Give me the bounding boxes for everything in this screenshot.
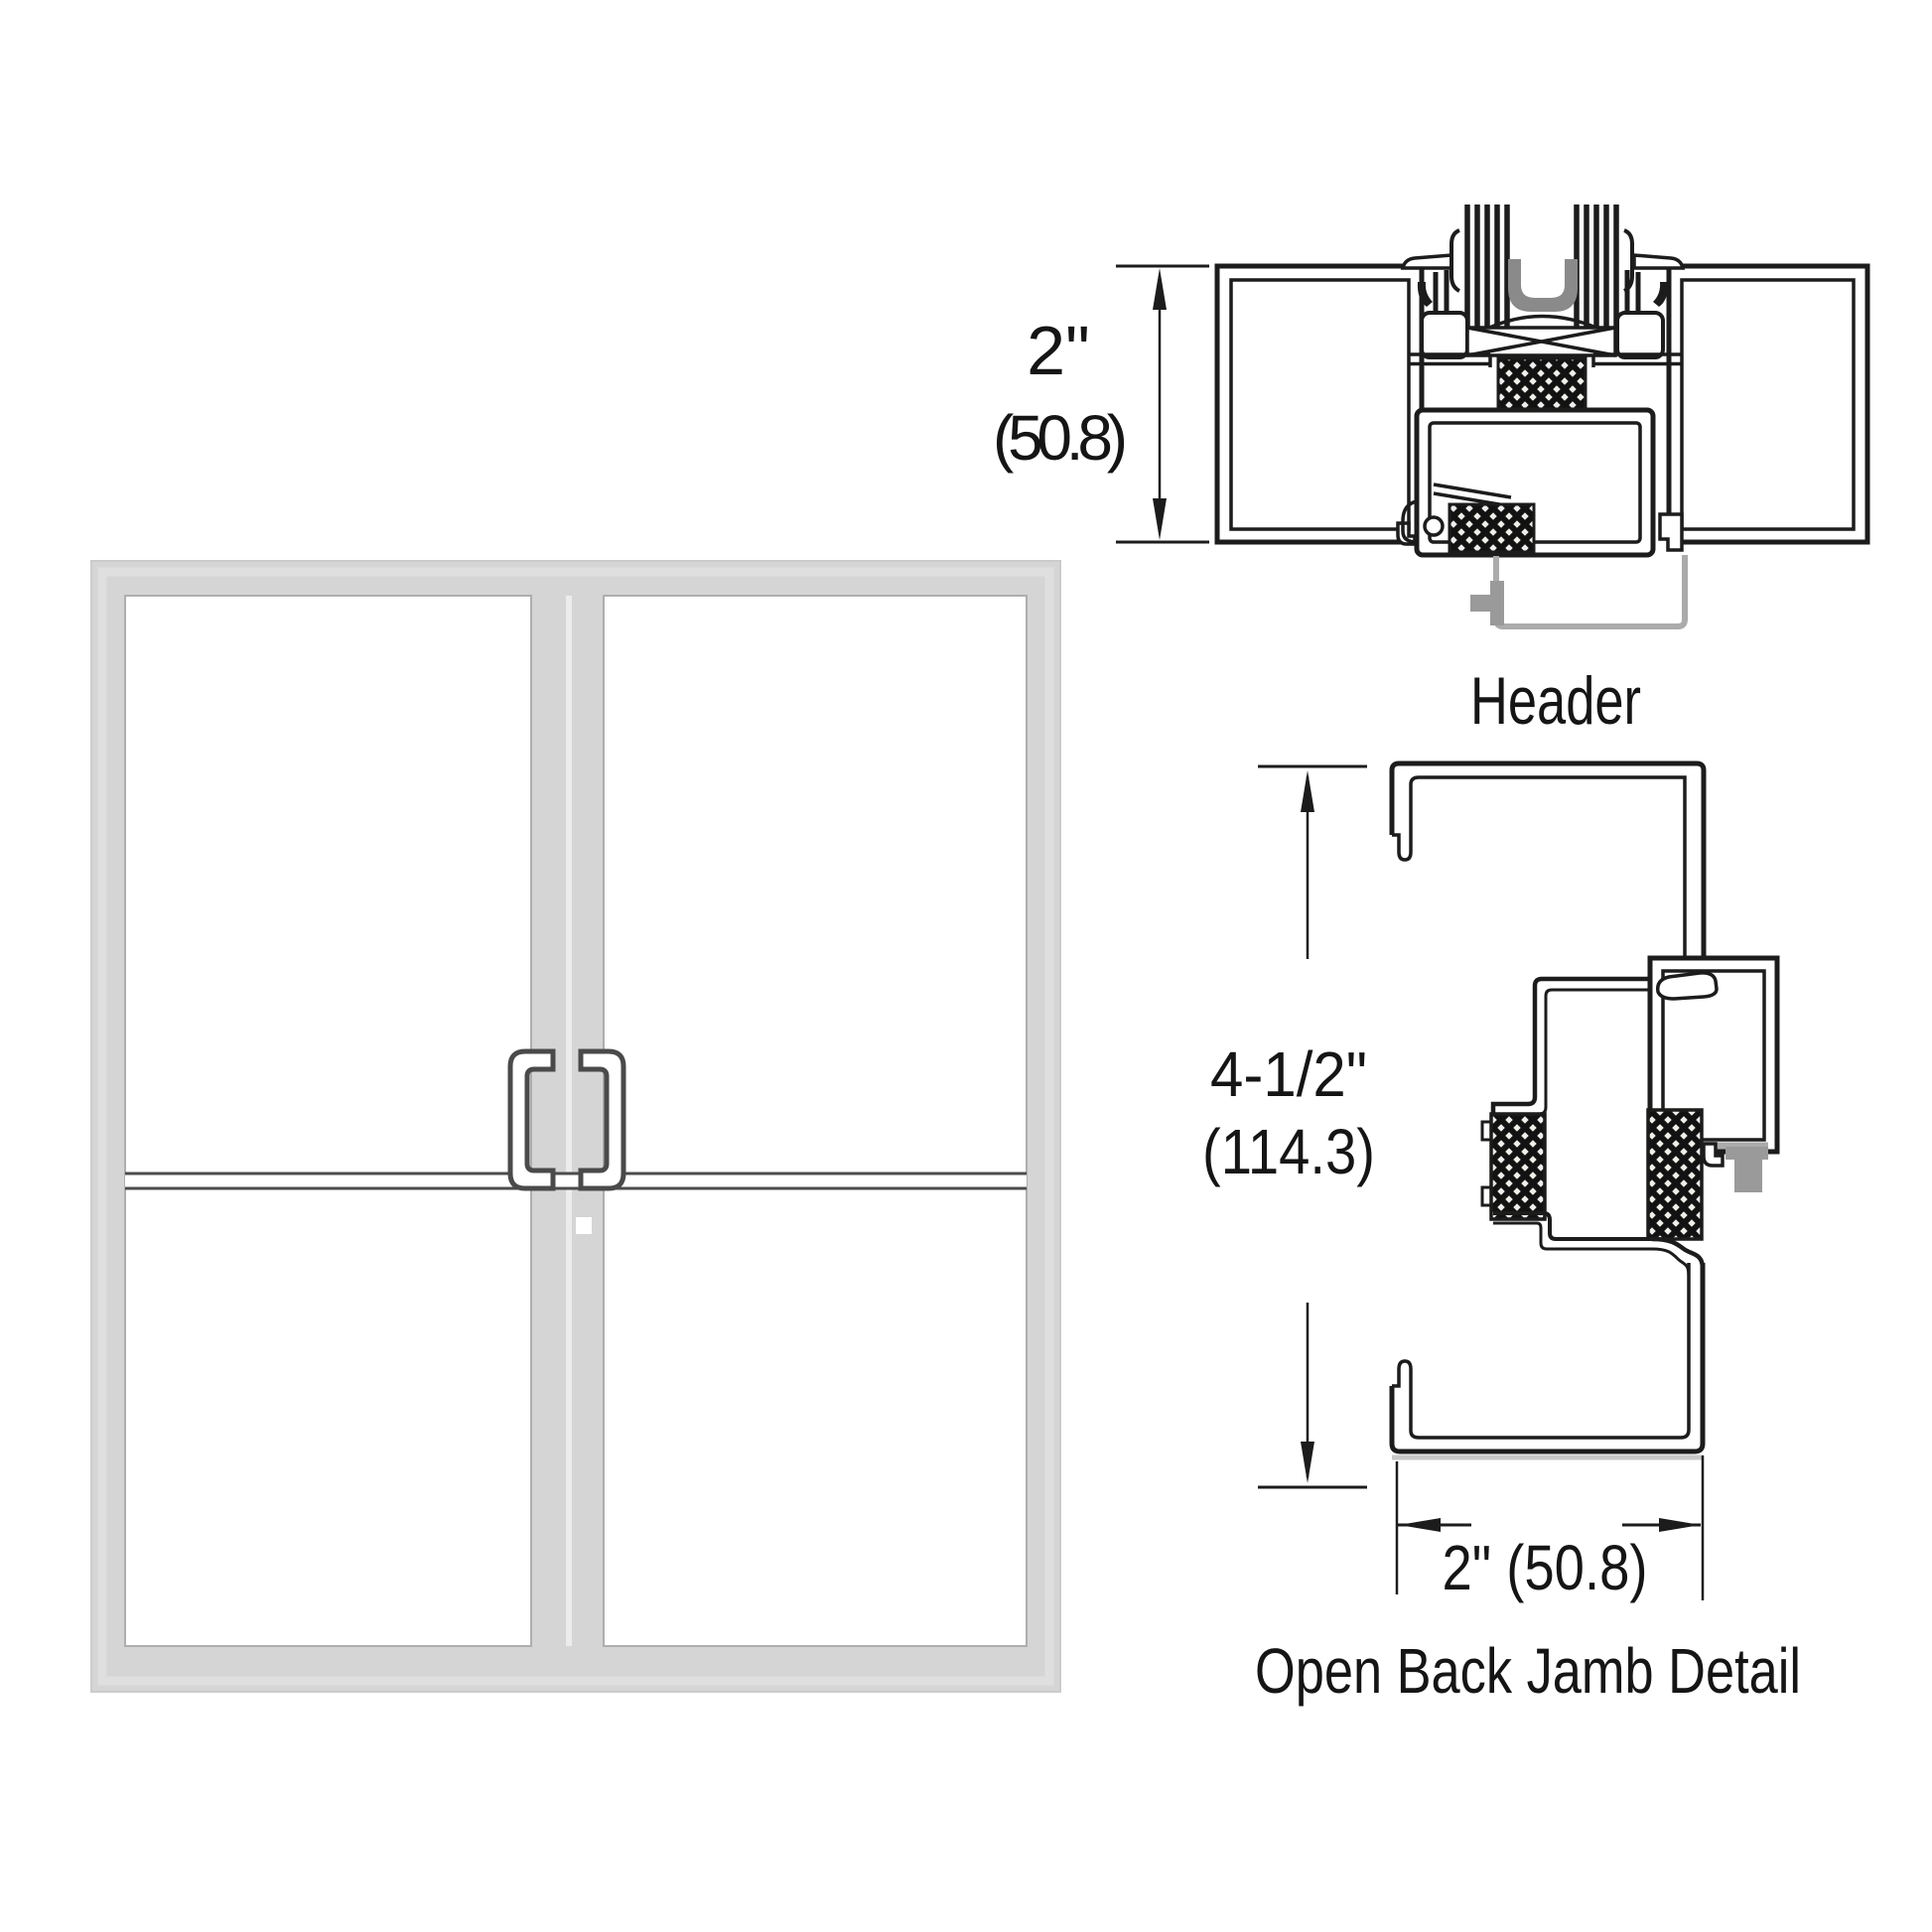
svg-text:Header: Header xyxy=(1470,663,1641,739)
svg-text:4-1/2": 4-1/2" xyxy=(1210,1038,1367,1110)
svg-text:2": 2" xyxy=(1027,312,1090,389)
svg-text:(50.8): (50.8) xyxy=(993,402,1128,474)
svg-text:2" (50.8): 2" (50.8) xyxy=(1443,1532,1648,1603)
svg-text:(114.3): (114.3) xyxy=(1202,1116,1375,1187)
svg-text:Open Back Jamb Detail: Open Back Jamb Detail xyxy=(1255,1635,1801,1707)
